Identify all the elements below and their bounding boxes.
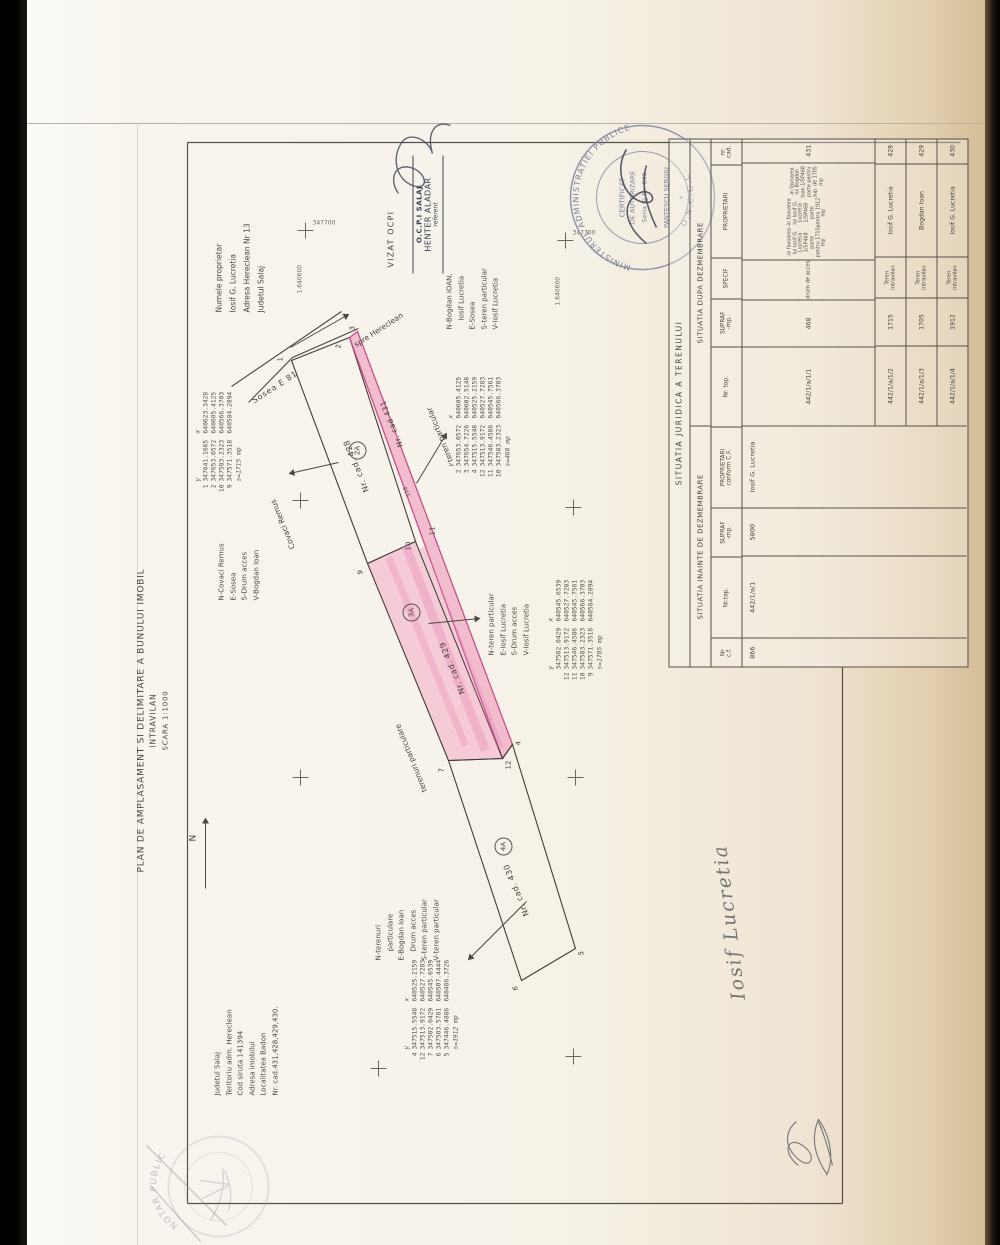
owner-block: Numele proprietar Iosif G. Lucretia Adre… <box>212 223 268 312</box>
parcel-431-area: s=468 mp <box>503 370 512 480</box>
neighbor-line: E-Iosif Lucretia <box>498 593 510 655</box>
coord-header-x: x <box>403 953 411 1001</box>
neighbor-line: particulare <box>385 899 397 960</box>
signature-scribbles <box>787 1119 832 1175</box>
neighbor-line: V-Iosif Lucretia <box>521 593 533 655</box>
cell-supraf: 468 <box>742 299 874 347</box>
coord-row: 7347502.0429640545.6539 <box>427 953 435 1063</box>
cell-supraf: 1912 <box>937 297 967 345</box>
point-label: 7 <box>437 768 445 772</box>
coord-row: 11347546.4586640545.7561 <box>571 573 579 683</box>
neighbor-line: N-Covaci Remus <box>216 543 228 600</box>
col-header-nr-cad: nr. cad. <box>711 139 741 164</box>
cell-nrtop: 442/1/a/1/3 <box>906 345 936 425</box>
col-header-nrtop-after: Nr. top. <box>711 346 741 426</box>
neighbor-line: V-teren particular <box>431 899 443 960</box>
table-row-cad-428: 442/1/a/1/2 1715 Teren intravilan Iosif … <box>875 138 906 425</box>
title-block: PLAN DE AMPLASAMENT SI DELIMITARE A BUNU… <box>136 525 169 915</box>
stamp-inner-line: CERTIFICAT <box>618 177 626 217</box>
cell-grants: -in favoarea lui Iosif G. Lucretia 1/5P4… <box>742 162 874 258</box>
location-line: Teritoriu adm. Hereclean <box>224 1006 236 1095</box>
coord-row: 347502.0429640545.6539 <box>555 573 563 683</box>
cell-nrtop: 442/1/a/1/1 <box>742 346 874 425</box>
coord-row: 2347653.0572640605.4125 <box>455 370 463 480</box>
parcel-429-coords: yx 347502.0429640545.6539 12347513.91726… <box>547 573 604 683</box>
coord-header-y: y <box>547 621 555 669</box>
point-label: 9 <box>356 570 364 574</box>
coord-row: 9347571.3518640584.2894 <box>226 385 234 495</box>
section-after-header: SITUATIA DUPA DEZMEMBRARE <box>690 139 710 425</box>
table-title: SITUATIA JURIDICA A TERENULUI <box>669 139 690 666</box>
owner-line: Adresa Hereclean Nr 13 <box>240 223 254 312</box>
parcel-429-neighbors: N-teren particular E-Iosif Lucretia S-Dr… <box>486 593 532 655</box>
grant-line: -in favoarea lui Bogdan Ioan 1/5P468 par… <box>790 165 825 197</box>
coord-header-x: x <box>547 573 555 621</box>
cell-nr-cad: 428 <box>875 138 905 163</box>
neighbor-line: E-Sosea <box>228 543 240 600</box>
coord-header-y: y <box>403 1001 411 1049</box>
coord-header-y: y <box>447 418 455 466</box>
cell-proprietar: Iosif G. Lucretia <box>742 426 966 507</box>
ocpi-stamp: O.C.P.I SALAJ HENTER ALADAR referent <box>412 155 443 273</box>
neighbor-line: E-Sosea <box>467 268 479 329</box>
neighbor-line: Iosif Lucretia <box>456 268 468 329</box>
plan-title: PLAN DE AMPLASAMENT SI DELIMITARE A BUNU… <box>136 525 146 915</box>
col-header-proprietari: PROPRIETARI <box>711 164 741 258</box>
cell-proprietar: Iosif G. Lucretia <box>937 163 967 257</box>
owner-signature: Iosif Lucretia <box>718 843 740 1000</box>
cell-proprietar: Bogdan Ioan <box>906 163 936 257</box>
parcel-430-coords: yx 4347515.5548640525.2159 12347513.9172… <box>403 953 460 1063</box>
point-label: 12 <box>504 760 512 769</box>
plan-landscape-content: PLAN DE AMPLASAMENT SI DELIMITARE A BUNU… <box>0 0 1000 1245</box>
cell-specif: Teren intravilan <box>906 256 936 296</box>
coord-row: 12347513.9172640527.7283 <box>563 573 571 683</box>
cell-proprietar: Iosif G. Lucretia <box>875 163 905 257</box>
neighbor-line: S-teren particular <box>479 268 491 329</box>
cell-supraf: 5800 <box>742 507 966 555</box>
cell-nrtop: 442/1/a/1 <box>742 555 966 637</box>
point-label: 5 <box>577 951 585 955</box>
point-label: 2 <box>334 344 342 348</box>
neighbor-line: V-Bogdan Ioan <box>251 543 263 600</box>
parcel-430-outline <box>448 744 575 980</box>
coord-row: 5347446.4886640486.3726 <box>443 953 451 1063</box>
parcel-428-neighbors: N-Covaci Remus E-Sosea S-Drum acces V-Bo… <box>216 543 262 600</box>
coord-row: 3347654.7226640602.5148 <box>463 370 471 480</box>
neighbor-line: S-Drum acces <box>239 543 251 600</box>
point-label: 6 <box>511 986 519 990</box>
parcel-428-zone-badge: 2A <box>348 441 366 459</box>
point-label: 10 <box>404 541 412 550</box>
location-block: Judetul Salaj Teritoriu adm. Hereclean C… <box>212 1006 281 1095</box>
neighbor-line: N-Bogdan IOAN, <box>444 268 456 329</box>
cell-specif: Teren intravilan <box>937 256 967 296</box>
parcel-428-area: s=1715 mp <box>234 385 243 495</box>
col-header-nr-cf: Nr c.f. <box>711 637 741 666</box>
cell-nr-cf: 866 <box>742 637 966 666</box>
cell-nr-cad: 431 <box>742 138 874 162</box>
coord-row: 1347641.1665640623.3428 <box>202 385 210 495</box>
grant-line: -in favoarea lui Iosif G. Lucretia 1/5P4… <box>787 197 828 227</box>
location-line: Judetul Salaj <box>212 1006 224 1095</box>
table-row-before: 866 442/1/a/1 5800 Iosif G. Lucretia <box>742 425 966 666</box>
ocpi-stamp-name: HENTER ALADAR <box>423 155 432 273</box>
grid-easting-label: 1.640600 <box>296 264 303 293</box>
coord-row: 12347513.9172640527.7283 <box>479 370 487 480</box>
plan-subtitle: INTRAVILAN <box>148 525 157 915</box>
cell-supraf: 1705 <box>906 297 936 345</box>
parcel-431-neighbors: N-Bogdan IOAN, Iosif Lucretia E-Sosea S-… <box>444 268 502 329</box>
neighbor-line: N-teren particular <box>486 593 498 655</box>
neighbor-line: S-teren particular <box>419 899 431 960</box>
juridical-situation-table: SITUATIA JURIDICA A TERENULUI SITUATIA I… <box>668 138 968 667</box>
neighbor-line: N-terenuri <box>373 899 385 960</box>
neighbor-line: V-Iosif Lucretia <box>490 268 502 329</box>
owner-line: Numele proprietar <box>212 223 226 312</box>
coord-row: 10347583.2323640566.3703 <box>218 385 226 495</box>
col-header-specif: SPECIF <box>711 257 741 297</box>
coord-row: 12347513.9172640527.7283 <box>419 953 427 1063</box>
cell-specif: drum de acces <box>742 259 874 299</box>
location-line: Cod siruta 141394 <box>235 1006 247 1095</box>
coord-header-x: x <box>194 385 202 433</box>
scan-black-border-left <box>0 0 27 1245</box>
parcel-429-area: s=1705 mp <box>595 573 604 683</box>
cell-nr-cad: 429 <box>906 138 936 163</box>
cell-nrtop: 442/1/a/1/2 <box>875 345 905 425</box>
point-label: 3 <box>348 326 356 330</box>
ocpi-stamp-office: O.C.P.I SALAJ <box>415 155 423 273</box>
vizat-label: VIZAT OCPI <box>386 210 395 267</box>
notar-stamp: NOTAR PUBLIC <box>130 1110 260 1245</box>
parcel-430-neighbors: N-terenuri particulare E-Bogdan Ioan Dru… <box>373 899 442 960</box>
parcel-430-zone-badge: 4A <box>494 837 512 855</box>
neighbor-line: E-Bogdan Ioan <box>396 899 408 960</box>
plan-scale: SCARA 1:1000 <box>161 525 169 915</box>
neighbor-line: S-Drum acces <box>509 593 521 655</box>
owner-line: Judetul Salaj <box>254 223 268 312</box>
owner-line: Iosif G. Lucretia <box>226 223 240 312</box>
parcel-431-coords: yx 2347653.0572640605.4125 3347654.72266… <box>447 370 512 480</box>
point-label: 11 <box>428 526 436 535</box>
coord-row: 9347571.3518640584.2894 <box>587 573 595 683</box>
cell-nr-cad: 430 <box>937 138 967 163</box>
scanned-cadastral-plan: PLAN DE AMPLASAMENT SI DELIMITARE A BUNU… <box>0 0 1000 1245</box>
scan-black-border-right <box>985 0 1000 1245</box>
table-row-cad-429: 442/1/a/1/3 1705 Teren intravilan Bogdan… <box>906 138 937 425</box>
coord-row: 10347583.2323640566.3703 <box>579 573 587 683</box>
coord-row: 6347503.5781640507.4444 <box>435 953 443 1063</box>
col-header-proprietari-cf: PROPRIETARI conform C.F. <box>711 426 741 508</box>
grant-line: -in favoarea lui Iosif G. Lucretia 1/5P4… <box>787 227 828 257</box>
coord-header-y: y <box>194 433 202 481</box>
coord-header-x: x <box>447 370 455 418</box>
parcel-430-area: s=1912 mp <box>451 953 460 1063</box>
table-row-cad-431: 442/1/a/1/1 468 drum de acces -in favoar… <box>742 138 875 425</box>
location-line: Nr. cad.431,428,429,430. <box>270 1006 282 1095</box>
cell-supraf: 1715 <box>875 297 905 345</box>
location-line: Adresa imobilui <box>247 1006 259 1095</box>
neighbor-line: Drum acces <box>408 899 420 960</box>
section-before-header: SITUATIA INAINTE DE DEZMEMBRARE <box>690 425 710 666</box>
location-line: Localitatea Badon <box>258 1006 270 1095</box>
col-header-nrtop: Nr.top. <box>711 556 741 638</box>
point-label: 4 <box>514 741 522 745</box>
cell-specif: Teren intravilan <box>875 256 905 296</box>
cell-nrtop: 442/1/a/1/4 <box>937 345 967 425</box>
parcel-428-coords: yx 1347641.1665640623.3428 2347653.05726… <box>194 385 243 495</box>
coord-row: 4347515.5548640525.2159 <box>411 953 419 1063</box>
table-row-cad-430: 442/1/a/1/4 1912 Teren intravilan Iosif … <box>937 138 967 425</box>
col-header-supraf: SUPRAF -mp. <box>711 507 741 555</box>
north-label: N <box>188 834 198 841</box>
col-header-supraf-after: SUPRAF -mp. <box>711 298 741 346</box>
parcel-429-zone-badge: 3A <box>402 603 420 621</box>
coord-row: 2347653.0572640605.4125 <box>210 385 218 495</box>
coord-row: 4347515.5548640525.2159 <box>471 370 479 480</box>
point-label: 1 <box>276 357 284 361</box>
grid-northing-label: 347700 <box>312 219 335 226</box>
ocpi-stamp-role: referent <box>432 155 439 273</box>
coord-row: 10347583.2323640566.3703 <box>495 370 503 480</box>
coord-row: 11347546.4586640545.7561 <box>487 370 495 480</box>
